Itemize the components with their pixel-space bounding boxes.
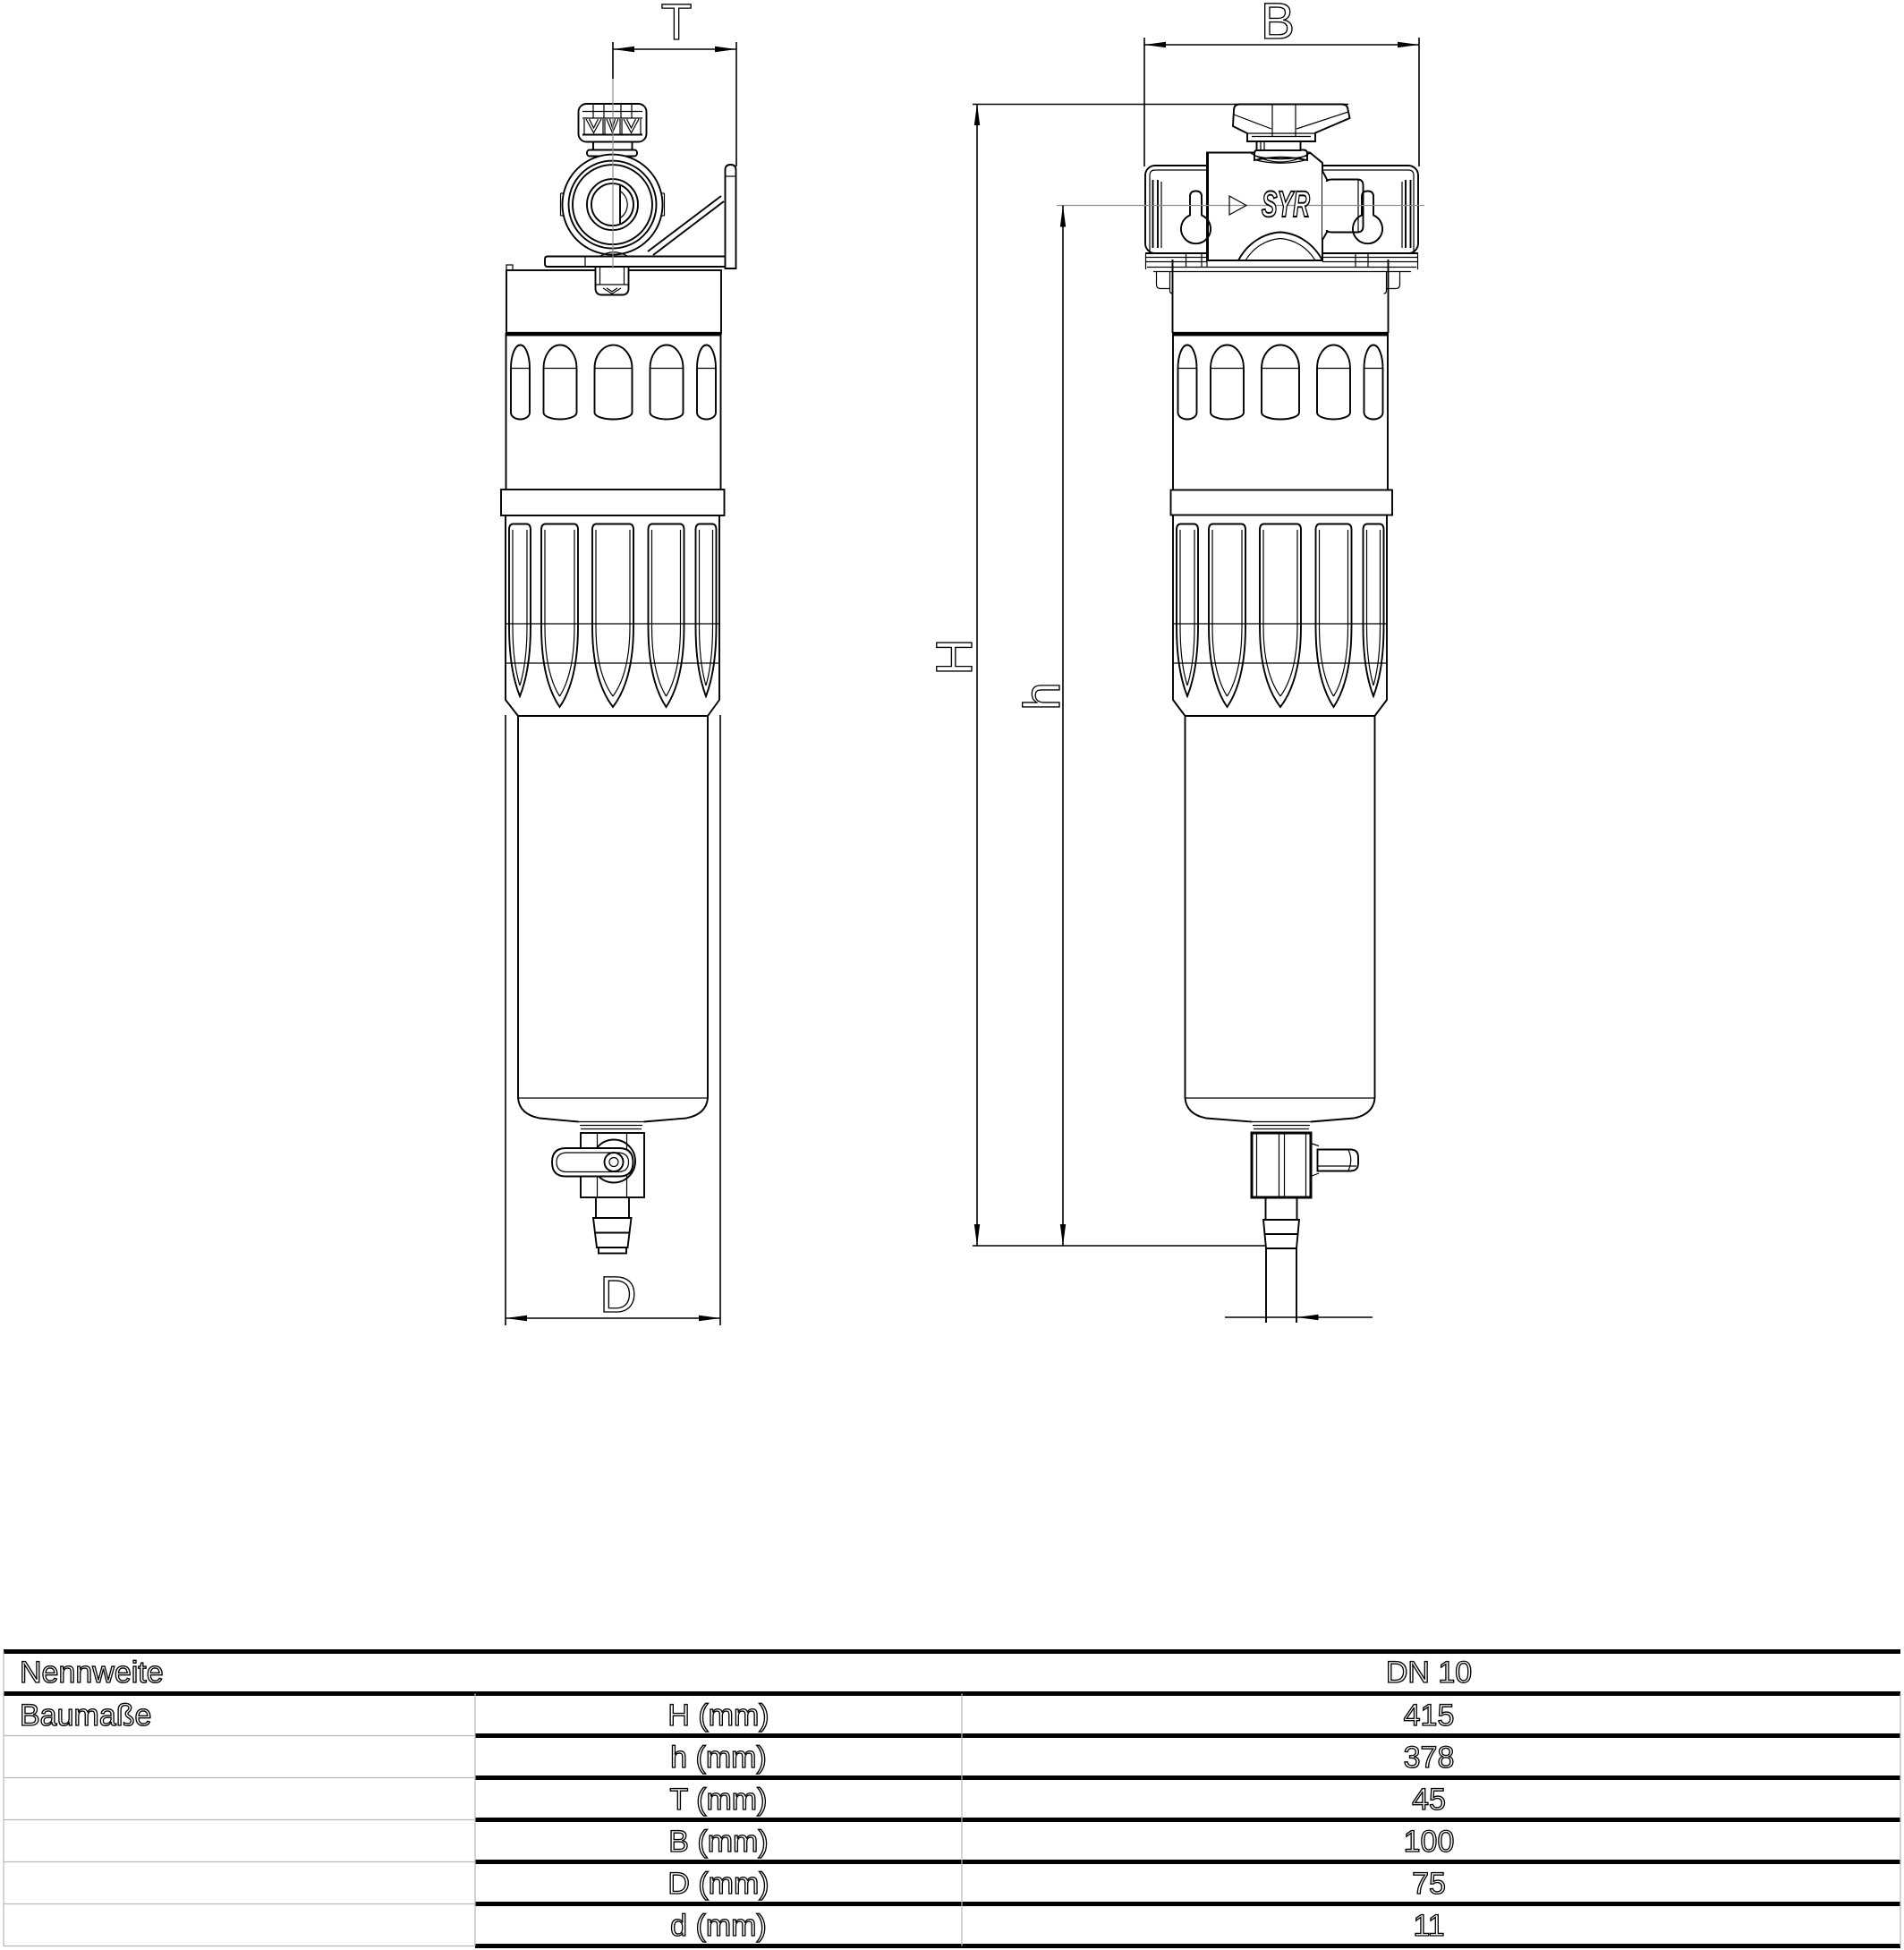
svg-text:378: 378: [1404, 1741, 1455, 1775]
svg-text:Baumaße: Baumaße: [20, 1699, 151, 1733]
svg-text:H (mm): H (mm): [667, 1699, 769, 1733]
svg-text:B: B: [1261, 0, 1295, 50]
svg-text:75: 75: [1412, 1867, 1446, 1901]
svg-text:d (mm): d (mm): [670, 1909, 767, 1943]
svg-text:415: 415: [1404, 1699, 1455, 1733]
svg-text:Nennweite: Nennweite: [20, 1656, 164, 1690]
svg-text:h (mm): h (mm): [670, 1741, 767, 1775]
svg-text:100: 100: [1404, 1825, 1455, 1859]
svg-text:SYR: SYR: [1262, 183, 1310, 225]
svg-text:11: 11: [1413, 1909, 1444, 1943]
svg-text:T (mm): T (mm): [670, 1783, 768, 1817]
svg-text:T: T: [661, 0, 693, 51]
svg-text:B (mm): B (mm): [668, 1825, 768, 1859]
svg-text:H: H: [926, 638, 983, 675]
svg-text:D: D: [599, 1266, 636, 1324]
svg-text:DN 10: DN 10: [1386, 1656, 1472, 1690]
svg-text:45: 45: [1412, 1783, 1446, 1817]
svg-text:D (mm): D (mm): [667, 1867, 769, 1901]
